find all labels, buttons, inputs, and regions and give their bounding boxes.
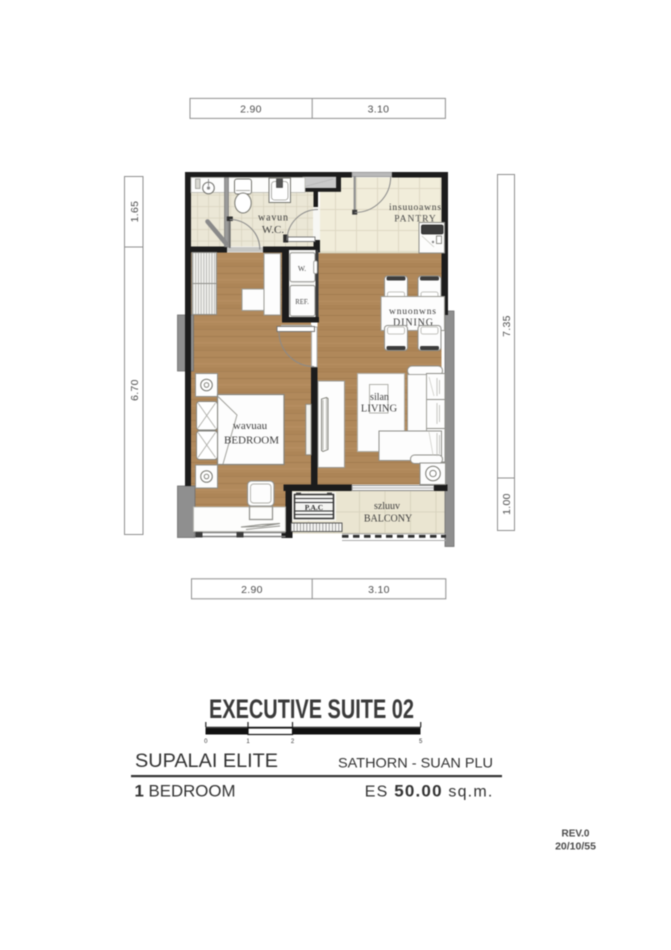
svg-text:szluuv: szluuv bbox=[374, 501, 400, 512]
svg-text:LIVING: LIVING bbox=[361, 404, 398, 415]
svg-text:BALCONY: BALCONY bbox=[364, 514, 412, 525]
svg-text:REF.: REF. bbox=[295, 299, 309, 306]
svg-text:insuuoawns: insuuoawns bbox=[389, 203, 441, 213]
svg-text:1.65: 1.65 bbox=[129, 201, 141, 223]
svg-text:7.35: 7.35 bbox=[501, 315, 513, 337]
svg-text:W.C.: W.C. bbox=[262, 224, 284, 236]
svg-text:2.90: 2.90 bbox=[241, 584, 263, 596]
svg-text:ES 50.00 sq.m.: ES 50.00 sq.m. bbox=[365, 782, 494, 801]
svg-text:wnuonwns: wnuonwns bbox=[389, 307, 436, 317]
svg-text:BEDROOM: BEDROOM bbox=[224, 435, 279, 447]
svg-text:SUPALAI ELITE: SUPALAI ELITE bbox=[135, 751, 278, 772]
svg-text:wavun: wavun bbox=[258, 213, 288, 224]
svg-text:wavuau: wavuau bbox=[233, 420, 268, 432]
svg-text:silan: silan bbox=[370, 392, 389, 403]
svg-text:REV.0: REV.0 bbox=[562, 829, 590, 840]
svg-text:P.A.C: P.A.C bbox=[305, 503, 323, 512]
svg-text:3.10: 3.10 bbox=[368, 584, 390, 596]
svg-text:EXECUTIVE SUITE 02: EXECUTIVE SUITE 02 bbox=[209, 694, 414, 724]
svg-text:1.00: 1.00 bbox=[501, 493, 513, 515]
svg-text:6.70: 6.70 bbox=[129, 379, 141, 401]
svg-text:1 BEDROOM: 1 BEDROOM bbox=[135, 783, 236, 801]
svg-text:2.90: 2.90 bbox=[240, 104, 262, 116]
svg-text:SATHORN - SUAN PLU: SATHORN - SUAN PLU bbox=[338, 755, 493, 771]
svg-text:3.10: 3.10 bbox=[368, 104, 390, 116]
svg-text:20/10/55: 20/10/55 bbox=[555, 841, 596, 853]
svg-text:W.: W. bbox=[298, 264, 306, 273]
